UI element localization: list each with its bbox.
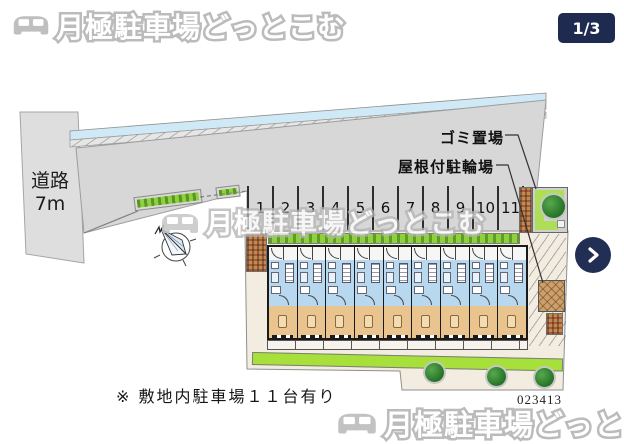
building-unit bbox=[354, 247, 383, 338]
garbage-area-label: ゴミ置場 bbox=[428, 127, 504, 148]
brand-title: 月極駐車場どっとこむ bbox=[55, 11, 346, 44]
building-unit bbox=[411, 247, 440, 338]
brick-wall-right bbox=[519, 187, 532, 233]
header: 月極駐車場どっとこむ bbox=[0, 0, 624, 60]
road-width-label: 道路 7m bbox=[22, 170, 78, 216]
parking-stall-number: 9 bbox=[447, 186, 472, 230]
site-note: ※ 敷地内駐車場１１台有り bbox=[116, 383, 337, 407]
page-indicator-badge: 1/3 bbox=[558, 13, 615, 43]
parking-stalls: 1234567891011 bbox=[247, 186, 524, 230]
reference-number: 023413 bbox=[517, 392, 562, 408]
building-unit bbox=[383, 247, 412, 338]
parking-stall-number: 8 bbox=[422, 186, 447, 230]
brand-car-icon bbox=[14, 16, 49, 34]
parking-stall-number: 1 bbox=[247, 186, 272, 230]
brick-wall-left bbox=[246, 233, 267, 272]
parking-stall-number: 3 bbox=[297, 186, 322, 230]
tree-icon bbox=[425, 363, 444, 382]
balcony-strip bbox=[267, 340, 528, 350]
building-unit bbox=[325, 247, 354, 338]
garbage-area bbox=[532, 187, 568, 233]
page: 月極駐車場どっとこむ 1/3 道路 7m 1234567891011 ゴミ置場 … bbox=[0, 0, 624, 444]
bicycle-shelter bbox=[538, 280, 565, 312]
parking-stall-number: 4 bbox=[322, 186, 347, 230]
building-unit bbox=[440, 247, 469, 338]
parking-stall-number: 7 bbox=[397, 186, 422, 230]
apartment-building bbox=[267, 245, 528, 340]
chevron-right-icon bbox=[583, 245, 603, 265]
parking-stall-number: 5 bbox=[347, 186, 372, 230]
parking-stall-number: 10 bbox=[472, 186, 497, 230]
next-page-button[interactable] bbox=[575, 237, 611, 273]
building-unit bbox=[497, 247, 526, 338]
parking-stall-number: 2 bbox=[272, 186, 297, 230]
building-unit bbox=[297, 247, 326, 338]
building-unit bbox=[269, 247, 297, 338]
page-indicator-text: 1/3 bbox=[572, 19, 600, 38]
parking-stall-number: 6 bbox=[372, 186, 397, 230]
tree-icon bbox=[535, 368, 554, 387]
brick-wall-lower bbox=[546, 313, 563, 335]
bicycle-parking-label: 屋根付駐輪場 bbox=[386, 156, 494, 177]
building-unit bbox=[469, 247, 498, 338]
hedge-strip-top bbox=[268, 233, 520, 244]
tree-icon bbox=[542, 195, 565, 218]
tree-icon bbox=[487, 367, 506, 386]
